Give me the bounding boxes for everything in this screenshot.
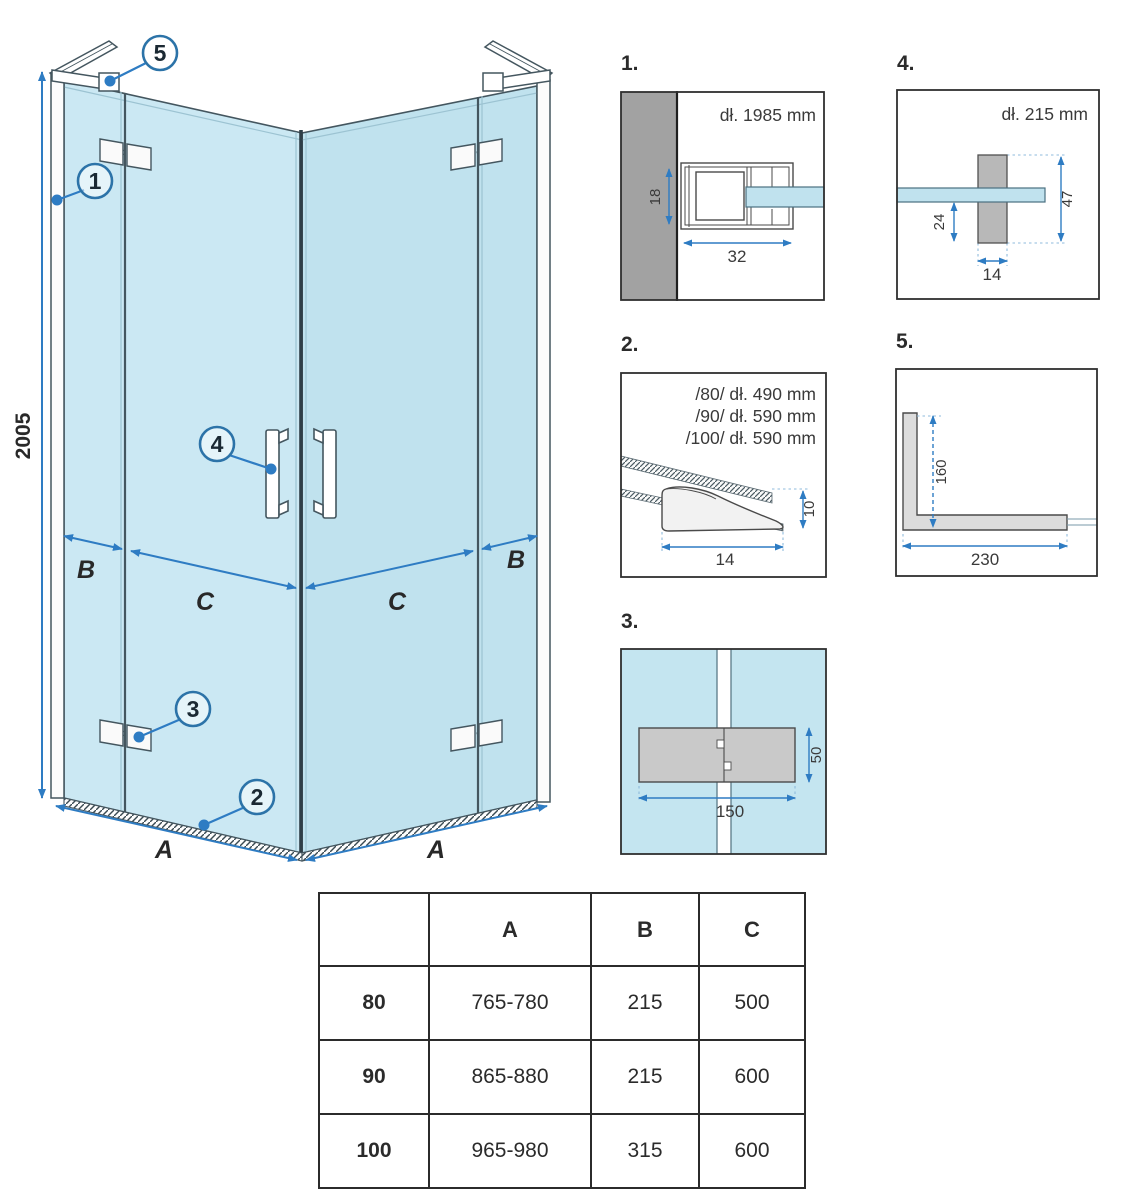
top-support-bars bbox=[50, 41, 552, 91]
cell-90-b: 215 bbox=[591, 1040, 699, 1114]
glass-section bbox=[897, 188, 1045, 202]
detail-4-length: dł. 215 mm bbox=[1001, 104, 1088, 124]
cell-100-b: 315 bbox=[591, 1114, 699, 1188]
row-size-80: 80 bbox=[319, 966, 429, 1040]
glass-section bbox=[746, 187, 824, 207]
detail-3-label: 3. bbox=[621, 610, 639, 634]
svg-text:18: 18 bbox=[647, 189, 664, 206]
svg-text:24: 24 bbox=[931, 214, 948, 231]
hinge-plates bbox=[639, 728, 795, 782]
col-header-b: B bbox=[591, 893, 699, 966]
callout-5: 5 bbox=[105, 36, 178, 87]
dim-b-left: B bbox=[77, 556, 95, 584]
main-diagram: 2005 B C C B A A 5 1 bbox=[0, 0, 600, 880]
detail-5-support-bar: 160 230 bbox=[895, 368, 1098, 577]
detail-3-hinge: 150 50 bbox=[620, 648, 827, 855]
dim-c-left: C bbox=[196, 588, 215, 616]
size-table: A B C 80 765-780 215 500 90 865-880 215 … bbox=[318, 892, 806, 1189]
detail-1-length: dł. 1985 mm bbox=[720, 105, 816, 125]
detail-1-label: 1. bbox=[621, 52, 639, 76]
right-top-clamp bbox=[483, 73, 503, 91]
detail-2-bottom-seal: 10 14 /80/ dł. 490 mm /90/ dł. 590 mm /1… bbox=[620, 372, 827, 578]
cell-80-c: 500 bbox=[699, 966, 805, 1040]
detail-1-wall-profile: 18 32 dł. 1985 mm bbox=[620, 91, 825, 301]
svg-text:1: 1 bbox=[89, 168, 102, 194]
svg-text:2: 2 bbox=[251, 784, 264, 810]
svg-text:4: 4 bbox=[211, 431, 224, 457]
shower-enclosure-spec-sheet: 2005 B C C B A A 5 1 bbox=[0, 0, 1127, 1200]
svg-text:3: 3 bbox=[187, 696, 200, 722]
svg-text:47: 47 bbox=[1059, 191, 1076, 208]
svg-text:10: 10 bbox=[801, 501, 818, 518]
dim-c-right: C bbox=[388, 588, 407, 616]
svg-text:50: 50 bbox=[808, 747, 825, 764]
svg-text:/80/ dł. 490 mm: /80/ dł. 490 mm bbox=[695, 384, 816, 404]
cell-90-a: 865-880 bbox=[429, 1040, 591, 1114]
cell-80-a: 765-780 bbox=[429, 966, 591, 1040]
dim-a-left: A bbox=[154, 836, 173, 864]
left-wall-profile bbox=[51, 74, 64, 798]
dim-b-right: B bbox=[507, 546, 525, 574]
cell-100-a: 965-980 bbox=[429, 1114, 591, 1188]
svg-text:150: 150 bbox=[716, 802, 744, 821]
table-header-row: A B C bbox=[319, 893, 805, 966]
svg-text:14: 14 bbox=[983, 265, 1002, 284]
col-header-a: A bbox=[429, 893, 591, 966]
svg-text:14: 14 bbox=[716, 550, 735, 569]
detail-2-label: 2. bbox=[621, 333, 639, 357]
height-dim-label: 2005 bbox=[12, 412, 35, 459]
table-row: 90 865-880 215 600 bbox=[319, 1040, 805, 1114]
svg-text:230: 230 bbox=[971, 550, 999, 569]
svg-text:32: 32 bbox=[728, 247, 747, 266]
row-size-90: 90 bbox=[319, 1040, 429, 1114]
dim-a-right: A bbox=[426, 836, 445, 864]
svg-text:160: 160 bbox=[933, 459, 950, 484]
cell-100-c: 600 bbox=[699, 1114, 805, 1188]
svg-text:/100/ dł. 590 mm: /100/ dł. 590 mm bbox=[686, 428, 816, 448]
col-header-c: C bbox=[699, 893, 805, 966]
row-size-100: 100 bbox=[319, 1114, 429, 1188]
table-corner-cell bbox=[319, 893, 429, 966]
svg-text:5: 5 bbox=[154, 40, 167, 66]
cell-80-b: 215 bbox=[591, 966, 699, 1040]
right-door-handle bbox=[323, 430, 336, 518]
table-row: 100 965-980 315 600 bbox=[319, 1114, 805, 1188]
detail-2-lengths: /80/ dł. 490 mm /90/ dł. 590 mm /100/ dł… bbox=[686, 384, 816, 448]
right-wall-profile bbox=[537, 80, 550, 802]
detail-4-handle-profile: 47 24 14 dł. 215 mm bbox=[896, 89, 1100, 300]
cell-90-c: 600 bbox=[699, 1040, 805, 1114]
table-row: 80 765-780 215 500 bbox=[319, 966, 805, 1040]
svg-text:/90/ dł. 590 mm: /90/ dł. 590 mm bbox=[695, 406, 816, 426]
detail-5-label: 5. bbox=[896, 330, 914, 354]
detail-4-label: 4. bbox=[897, 52, 915, 76]
